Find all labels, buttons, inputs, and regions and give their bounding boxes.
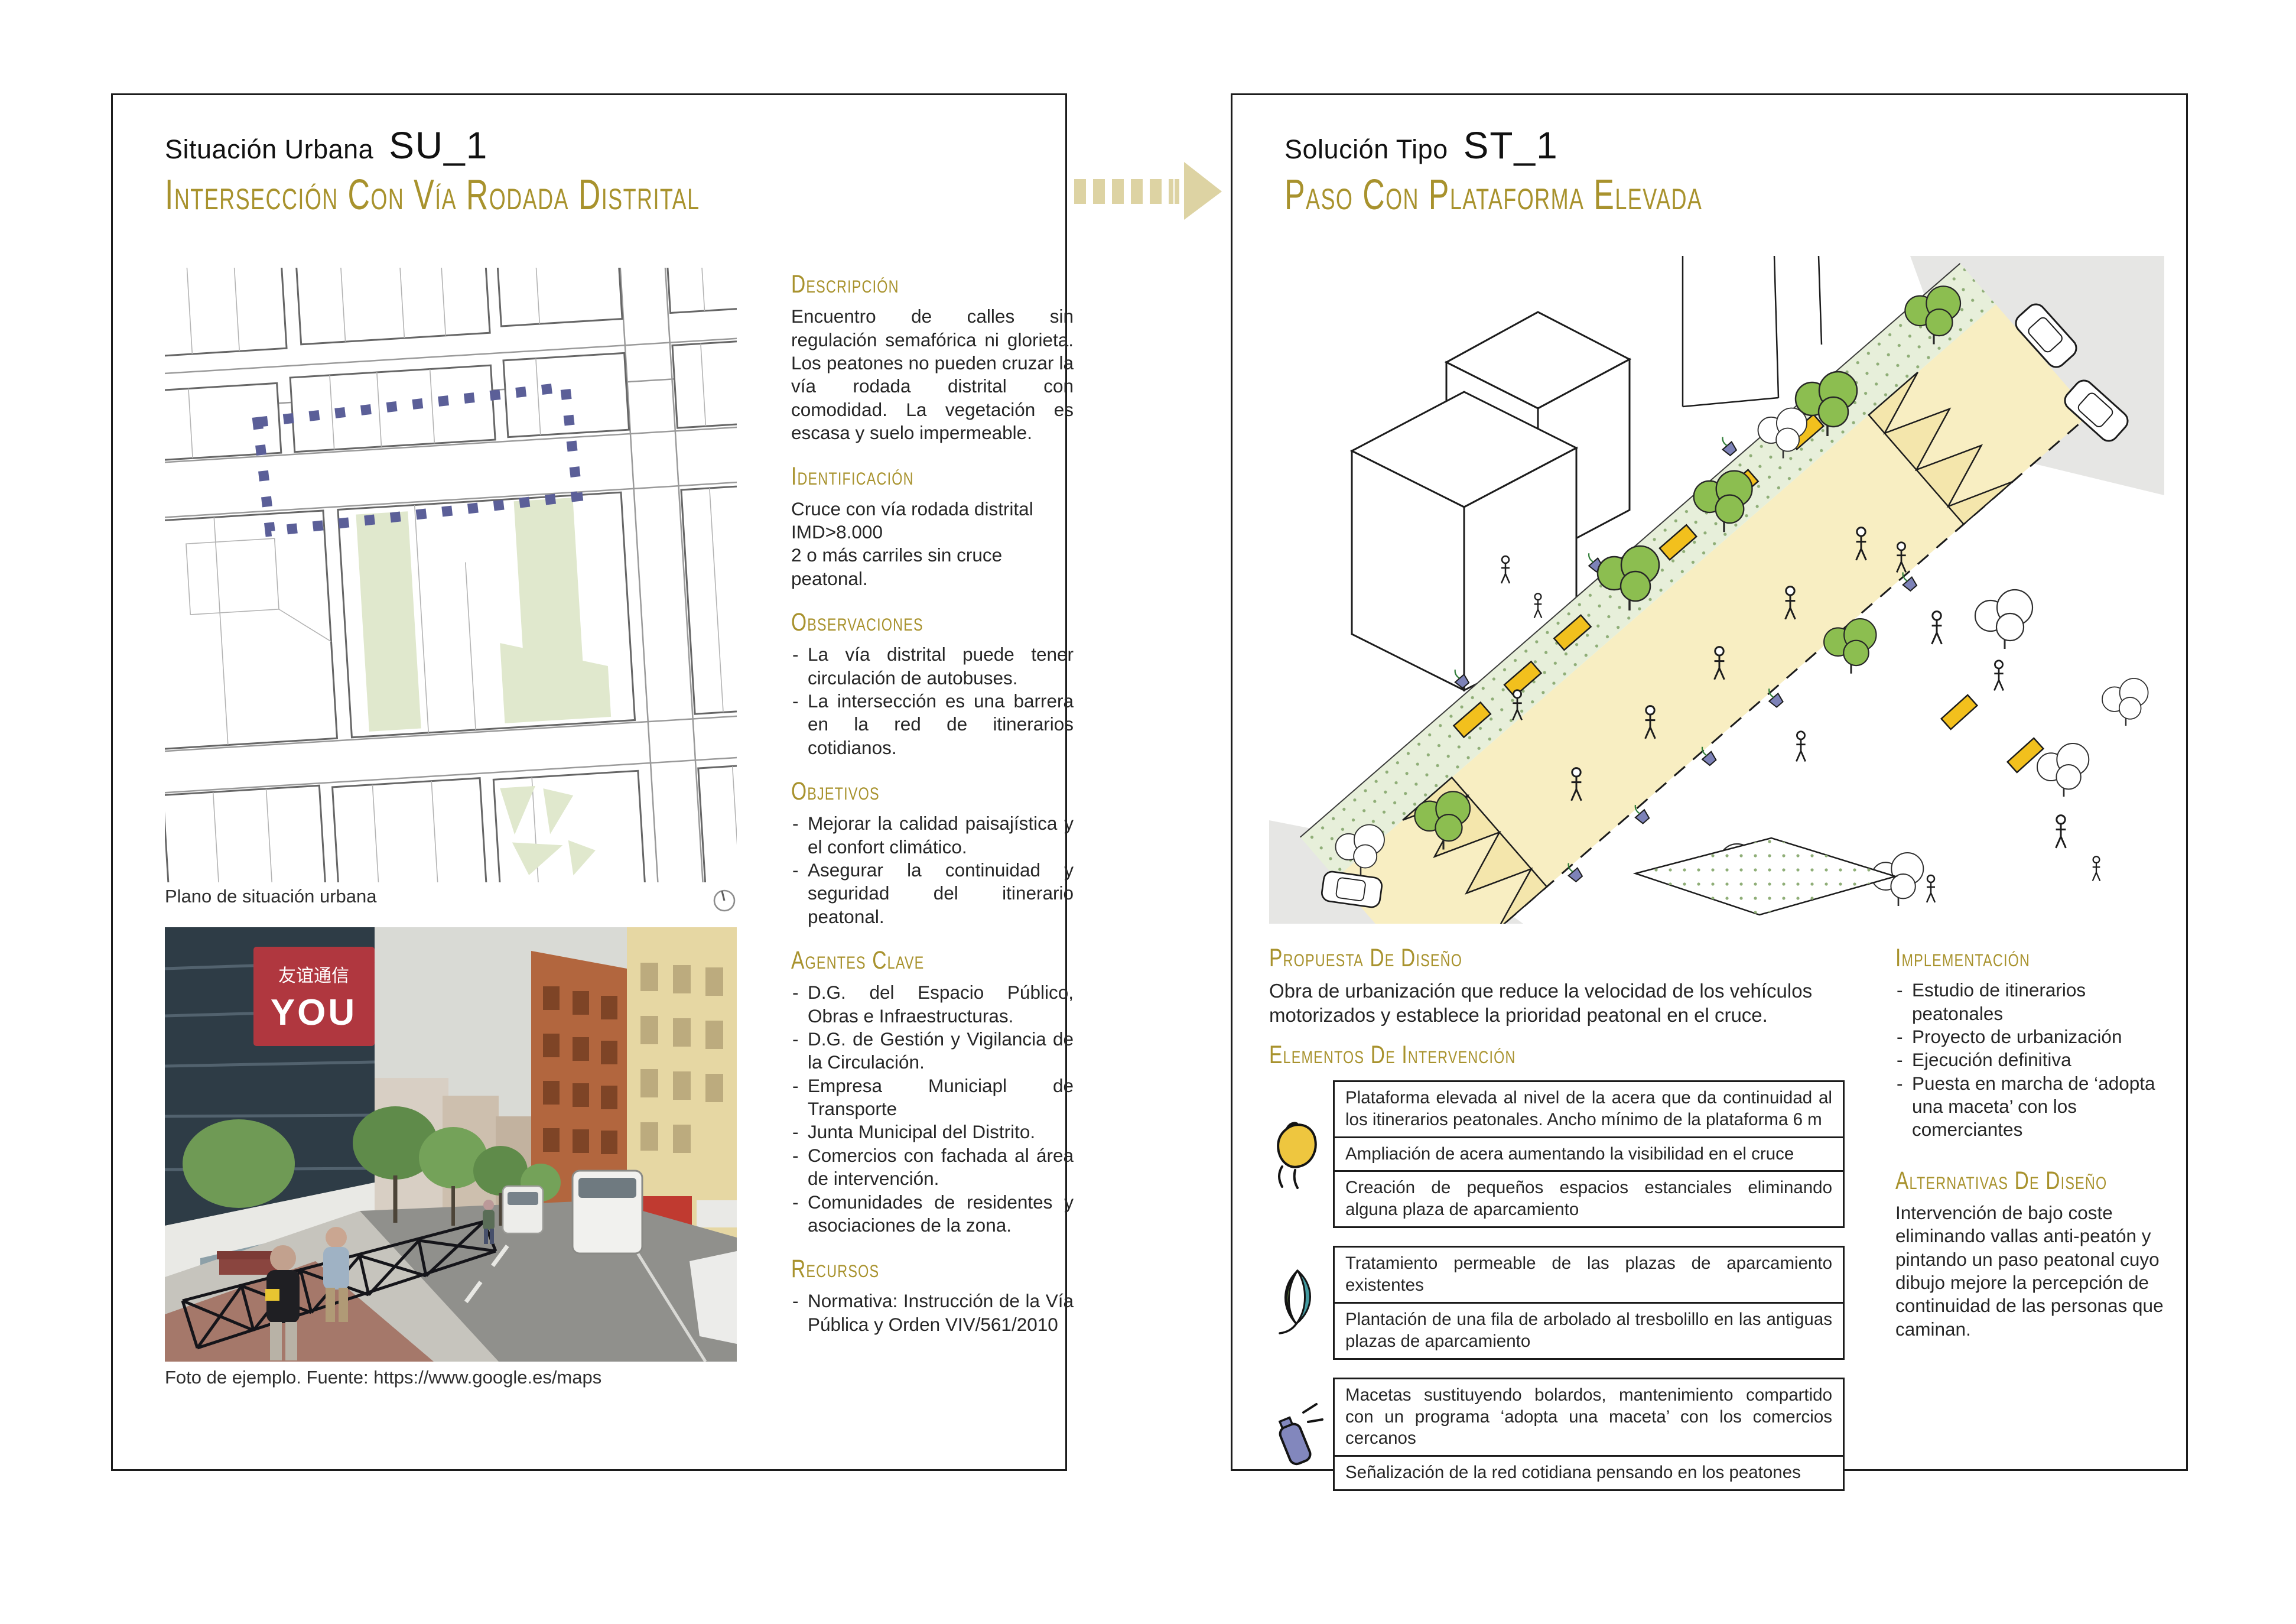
text-line: IMD>8.000 xyxy=(791,521,1074,544)
list-item: Empresa Municiapl de Transporte xyxy=(791,1074,1074,1121)
situacion-urbana-panel: Situación Urbana SU_1 Intersección con v… xyxy=(111,93,1067,1471)
section-heading: Agentes clave xyxy=(791,947,1074,974)
section-elementos-heading: Elementos de intervención xyxy=(1269,1042,1884,1068)
section-objetivos: Objetivos Mejorar la calidad paisajístic… xyxy=(791,778,1074,928)
list-item: D.G. del Espacio Público, Obras e Infrae… xyxy=(791,981,1074,1028)
intervention-boxes: Plataforma elevada al nivel de la acera … xyxy=(1333,1080,1845,1228)
left-panel-title: Intersección con vía rodada distrital xyxy=(165,171,908,219)
list-item: La intersección es una barrera en la red… xyxy=(791,690,1074,759)
panel-code: SU_1 xyxy=(389,124,488,167)
section-body: Normativa: Instrucción de la Vía Pública… xyxy=(791,1290,1074,1336)
spray-can-icon xyxy=(1269,1397,1323,1471)
intervention-item: Señalización de la red cotidiana pensand… xyxy=(1333,1455,1845,1491)
intervention-group-platform: Plataforma elevada al nivel de la acera … xyxy=(1269,1080,1884,1228)
list-item: Normativa: Instrucción de la Vía Pública… xyxy=(791,1290,1074,1336)
hand-icon xyxy=(1269,1116,1323,1193)
list-item: Asegurar la continuidad y seguridad del … xyxy=(791,859,1074,928)
raised-platform-sketch xyxy=(1269,256,2164,924)
list-item: D.G. de Gestión y Vigilancia de la Circu… xyxy=(791,1028,1074,1074)
street-photo: 友谊通信 YOU xyxy=(165,927,737,1362)
section-heading: Alternativas de diseño xyxy=(1895,1168,2178,1194)
section-identificacion: Identificación Cruce con vía rodada dist… xyxy=(791,463,1074,590)
shop-sign-cjk-text: 友谊通信 xyxy=(278,966,349,986)
map-caption: Plano de situación urbana xyxy=(165,886,376,907)
list-item: Comercios con fachada al área de interve… xyxy=(791,1144,1074,1191)
list-item: Puesta en marcha de ‘adopta una maceta’ … xyxy=(1895,1072,2178,1142)
urban-plan-drawing xyxy=(165,268,737,882)
section-body: Encuentro de calles sin regulación semaf… xyxy=(791,305,1074,444)
small-van xyxy=(503,1186,543,1233)
section-heading: Implementación xyxy=(1895,945,2178,972)
section-body: La vía distrital puede tener circulación… xyxy=(791,643,1074,759)
left-panel-header: Situación Urbana SU_1 xyxy=(165,124,488,167)
photo-caption: Foto de ejemplo. Fuente: https://www.goo… xyxy=(165,1367,601,1388)
map-caption-row: Plano de situación urbana xyxy=(165,886,737,913)
section-heading: Descripción xyxy=(791,271,1074,298)
section-heading: Objetivos xyxy=(791,778,1074,805)
photo-caption-row: Foto de ejemplo. Fuente: https://www.goo… xyxy=(165,1367,737,1388)
right-panel-title: Paso con plataforma elevada xyxy=(1284,171,1865,219)
solution-illustration xyxy=(1269,256,2164,924)
intervention-boxes: Tratamiento permeable de las plazas de a… xyxy=(1333,1246,1845,1360)
section-alternativas: Alternativas de diseño Intervención de b… xyxy=(1895,1168,2178,1341)
shop-sign-brand-text: YOU xyxy=(271,992,357,1033)
section-heading: Observaciones xyxy=(791,609,1074,636)
section-body: D.G. del Espacio Público, Obras e Infrae… xyxy=(791,981,1074,1237)
section-heading: Elementos de intervención xyxy=(1269,1042,1884,1068)
intervention-item: Macetas sustituyendo bolardos, mantenimi… xyxy=(1333,1378,1845,1457)
list-item: Estudio de itinerarios peatonales xyxy=(1895,979,2178,1025)
leaf-icon xyxy=(1269,1267,1323,1338)
intervention-item: Plataforma elevada al nivel de la acera … xyxy=(1333,1080,1845,1138)
section-body: Mejorar la calidad paisajística y el con… xyxy=(791,812,1074,928)
section-heading: Recursos xyxy=(791,1256,1074,1282)
solucion-tipo-panel: Solución Tipo ST_1 Paso con plataforma e… xyxy=(1231,93,2188,1471)
section-body: Intervención de bajo coste eliminando va… xyxy=(1895,1201,2178,1341)
section-agentes-clave: Agentes clave D.G. del Espacio Público, … xyxy=(791,947,1074,1237)
van xyxy=(573,1171,642,1253)
panel-kicker: Solución Tipo xyxy=(1284,134,1448,165)
text-line: Cruce con vía rodada distrital xyxy=(791,498,1074,521)
photo-figure: 友谊通信 YOU xyxy=(165,927,737,1362)
section-body: Cruce con vía rodada distrital IMD>8.000… xyxy=(791,498,1074,591)
section-heading: Propuesta de diseño xyxy=(1269,945,1884,972)
intervention-item: Ampliación de acera aumentando la visibi… xyxy=(1333,1136,1845,1172)
section-descripcion: Descripción Encuentro de calles sin regu… xyxy=(791,271,1074,444)
document-page: Situación Urbana SU_1 Intersección con v… xyxy=(0,0,2296,1624)
list-item: Mejorar la calidad paisajística y el con… xyxy=(791,812,1074,859)
panel-kicker: Situación Urbana xyxy=(165,134,373,165)
intervention-item: Tratamiento permeable de las plazas de a… xyxy=(1333,1246,1845,1304)
text-line: 2 o más carriles sin cruce peatonal. xyxy=(791,544,1074,590)
right-panel-main-column: Propuesta de diseño Obra de urbanización… xyxy=(1269,945,1884,1509)
intervention-group-street-furniture: Macetas sustituyendo bolardos, mantenimi… xyxy=(1269,1378,1884,1492)
left-panel-text-column: Descripción Encuentro de calles sin regu… xyxy=(791,271,1074,1355)
section-body: Estudio de itinerarios peatonales Proyec… xyxy=(1895,979,2178,1142)
list-item: Proyecto de urbanización xyxy=(1895,1025,2178,1048)
right-panel-side-column: Implementación Estudio de itinerarios pe… xyxy=(1895,945,2178,1360)
section-recursos: Recursos Normativa: Instrucción de la Ví… xyxy=(791,1256,1074,1336)
list-item: Comunidades de residentes y asociaciones… xyxy=(791,1191,1074,1238)
intervention-item: Plantación de una fila de arbolado al tr… xyxy=(1333,1302,1845,1360)
intervention-group-green: Tratamiento permeable de las plazas de a… xyxy=(1269,1246,1884,1360)
transition-arrow xyxy=(1074,161,1223,221)
list-item: Ejecución definitiva xyxy=(1895,1048,2178,1071)
section-body: Obra de urbanización que reduce la veloc… xyxy=(1269,979,1866,1028)
north-compass-icon xyxy=(712,886,737,913)
section-observaciones: Observaciones La vía distrital puede ten… xyxy=(791,609,1074,759)
list-item: Junta Municipal del Distrito. xyxy=(791,1120,1074,1144)
section-implementacion: Implementación Estudio de itinerarios pe… xyxy=(1895,945,2178,1142)
dashed-right-arrow-icon xyxy=(1074,161,1223,221)
panel-code: ST_1 xyxy=(1464,124,1559,167)
list-item: La vía distrital puede tener circulación… xyxy=(791,643,1074,690)
intervention-item: Creación de pequeños espacios estanciale… xyxy=(1333,1170,1845,1228)
right-panel-header: Solución Tipo ST_1 xyxy=(1284,124,1559,167)
intervention-boxes: Macetas sustituyendo bolardos, mantenimi… xyxy=(1333,1378,1845,1492)
map-figure xyxy=(165,268,737,882)
section-heading: Identificación xyxy=(791,463,1074,490)
section-propuesta: Propuesta de diseño Obra de urbanización… xyxy=(1269,945,1884,1028)
